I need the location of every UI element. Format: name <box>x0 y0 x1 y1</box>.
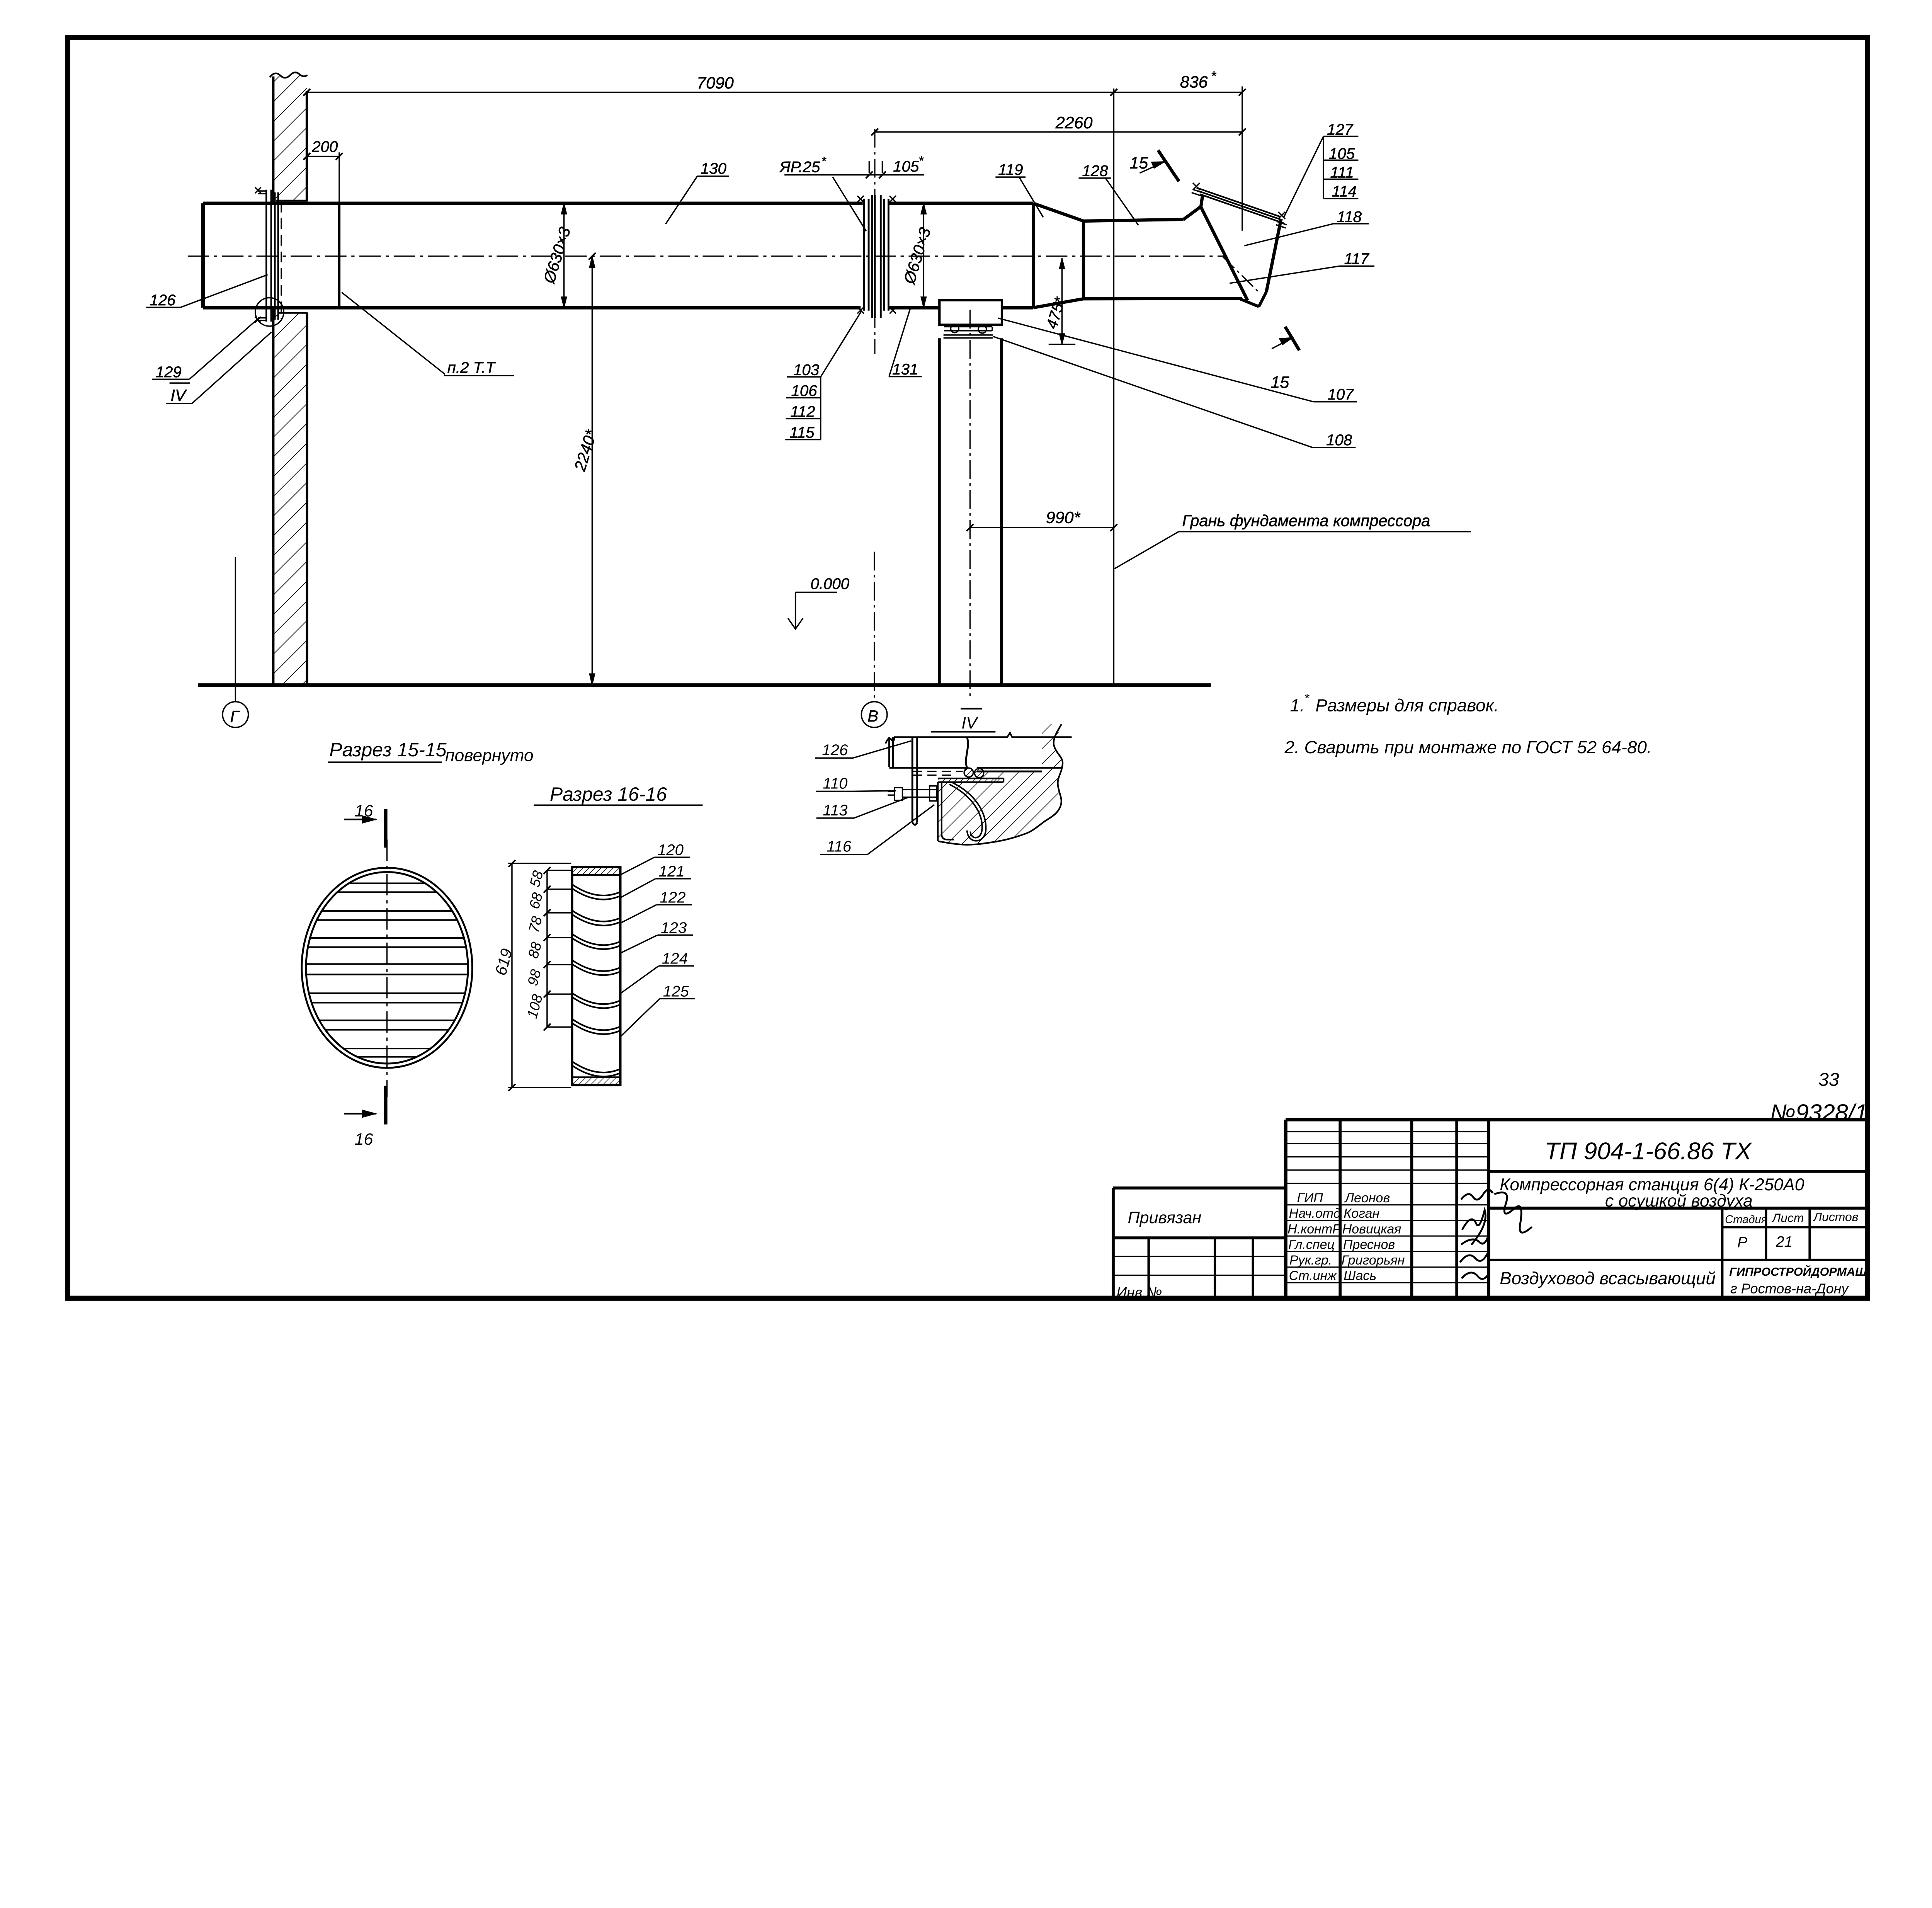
svg-text:113: 113 <box>823 802 848 819</box>
svg-text:21: 21 <box>1776 1234 1793 1250</box>
svg-text:119: 119 <box>998 161 1023 179</box>
svg-text:112: 112 <box>790 403 815 420</box>
svg-text:В: В <box>867 707 878 725</box>
svg-text:Разрез 16-16: Разрез 16-16 <box>550 783 667 805</box>
svg-text:1.: 1. <box>1290 696 1304 715</box>
svg-text:990*: 990* <box>1046 508 1081 527</box>
svg-text:126: 126 <box>150 291 176 309</box>
svg-text:0.000: 0.000 <box>810 575 849 592</box>
svg-text:ТП 904-1-66.86 ТХ: ТП 904-1-66.86 ТХ <box>1545 1138 1752 1165</box>
svg-text:Разрез 15-15: Разрез 15-15 <box>329 739 446 761</box>
svg-text:*: * <box>918 153 924 167</box>
svg-text:Листов: Листов <box>1813 1210 1858 1224</box>
svg-text:121: 121 <box>659 863 685 880</box>
svg-text:*: * <box>1304 691 1310 706</box>
svg-text:111: 111 <box>1330 163 1354 181</box>
svg-text:п.2 Т.Т: п.2 Т.Т <box>447 359 496 376</box>
svg-text:105: 105 <box>893 158 919 175</box>
svg-text:Новицкая: Новицкая <box>1342 1222 1401 1236</box>
svg-text:33: 33 <box>1818 1069 1839 1090</box>
svg-text:*: * <box>1211 69 1217 83</box>
svg-text:125: 125 <box>663 982 689 1000</box>
svg-text:836: 836 <box>1180 73 1208 91</box>
svg-text:IV: IV <box>961 714 979 732</box>
svg-text:116: 116 <box>827 838 852 855</box>
svg-text:Леонов: Леонов <box>1344 1191 1390 1205</box>
svg-text:Привязан: Привязан <box>1128 1208 1202 1227</box>
svg-text:118: 118 <box>1337 208 1362 226</box>
svg-text:Шась: Шась <box>1344 1268 1376 1283</box>
svg-text:Рук.гр.: Рук.гр. <box>1289 1253 1332 1268</box>
svg-text:16: 16 <box>355 1130 373 1149</box>
svg-text:123: 123 <box>661 919 687 936</box>
svg-text:Лист: Лист <box>1771 1211 1804 1225</box>
svg-text:15: 15 <box>1270 373 1289 392</box>
svg-text:*: * <box>821 154 827 168</box>
svg-text:131: 131 <box>892 361 918 378</box>
svg-text:106: 106 <box>791 382 817 399</box>
svg-text:126: 126 <box>822 741 848 759</box>
svg-text:115: 115 <box>789 424 815 441</box>
svg-text:ЯР.25: ЯР.25 <box>779 158 820 176</box>
svg-text:Инв.№: Инв.№ <box>1116 1284 1162 1300</box>
svg-text:Грань фундамента компрессора: Грань фундамента компрессора <box>1182 512 1430 530</box>
svg-text:2260: 2260 <box>1055 114 1093 132</box>
svg-text:7090: 7090 <box>697 74 734 92</box>
svg-text:107: 107 <box>1328 386 1354 403</box>
svg-text:103: 103 <box>793 361 820 378</box>
svg-text:Н.контР: Н.контР <box>1287 1222 1341 1236</box>
svg-text:128: 128 <box>1082 162 1109 179</box>
svg-text:15: 15 <box>1129 154 1148 172</box>
svg-text:122: 122 <box>660 889 685 906</box>
svg-text:Ст.инж: Ст.инж <box>1289 1268 1337 1283</box>
svg-text:Преснов: Преснов <box>1343 1237 1395 1252</box>
svg-text:114: 114 <box>1332 183 1357 200</box>
svg-text:124: 124 <box>662 950 688 967</box>
svg-text:Стадия: Стадия <box>1725 1214 1767 1226</box>
svg-text:130: 130 <box>701 160 727 177</box>
svg-text:200: 200 <box>311 138 338 155</box>
svg-text:Р: Р <box>1737 1234 1747 1251</box>
svg-text:Григорьян: Григорьян <box>1342 1253 1405 1268</box>
svg-text:IV: IV <box>170 386 187 404</box>
svg-text:№9328/1: №9328/1 <box>1770 1100 1868 1126</box>
svg-text:117: 117 <box>1344 250 1370 267</box>
svg-text:ГИПРОСТРОЙДОРМАШ: ГИПРОСТРОЙДОРМАШ <box>1729 1265 1867 1278</box>
svg-text:127: 127 <box>1327 121 1354 138</box>
svg-text:Нач.отд: Нач.отд <box>1289 1206 1341 1221</box>
svg-text:Гл.спец: Гл.спец <box>1288 1237 1335 1252</box>
svg-text:повернуто: повернуто <box>445 746 534 765</box>
svg-text:2. Сварить при монтаже по: 2. Сварить при монтаже по ГОСТ 52 64-80. <box>1284 737 1652 757</box>
svg-text:108: 108 <box>1326 431 1352 449</box>
svg-text:Воздуховод всасывающий: Воздуховод всасывающий <box>1500 1268 1716 1288</box>
svg-text:110: 110 <box>823 775 848 792</box>
svg-text:ГИП: ГИП <box>1297 1191 1323 1205</box>
svg-text:129: 129 <box>156 363 182 381</box>
svg-text:Размеры для справок.: Размеры для справок. <box>1315 696 1499 715</box>
svg-text:16: 16 <box>355 802 373 820</box>
svg-text:Коган: Коган <box>1344 1206 1379 1221</box>
svg-text:Г: Г <box>230 707 241 726</box>
svg-text:г Ростов-на-Дону: г Ростов-на-Дону <box>1730 1281 1849 1297</box>
svg-text:120: 120 <box>658 841 684 859</box>
